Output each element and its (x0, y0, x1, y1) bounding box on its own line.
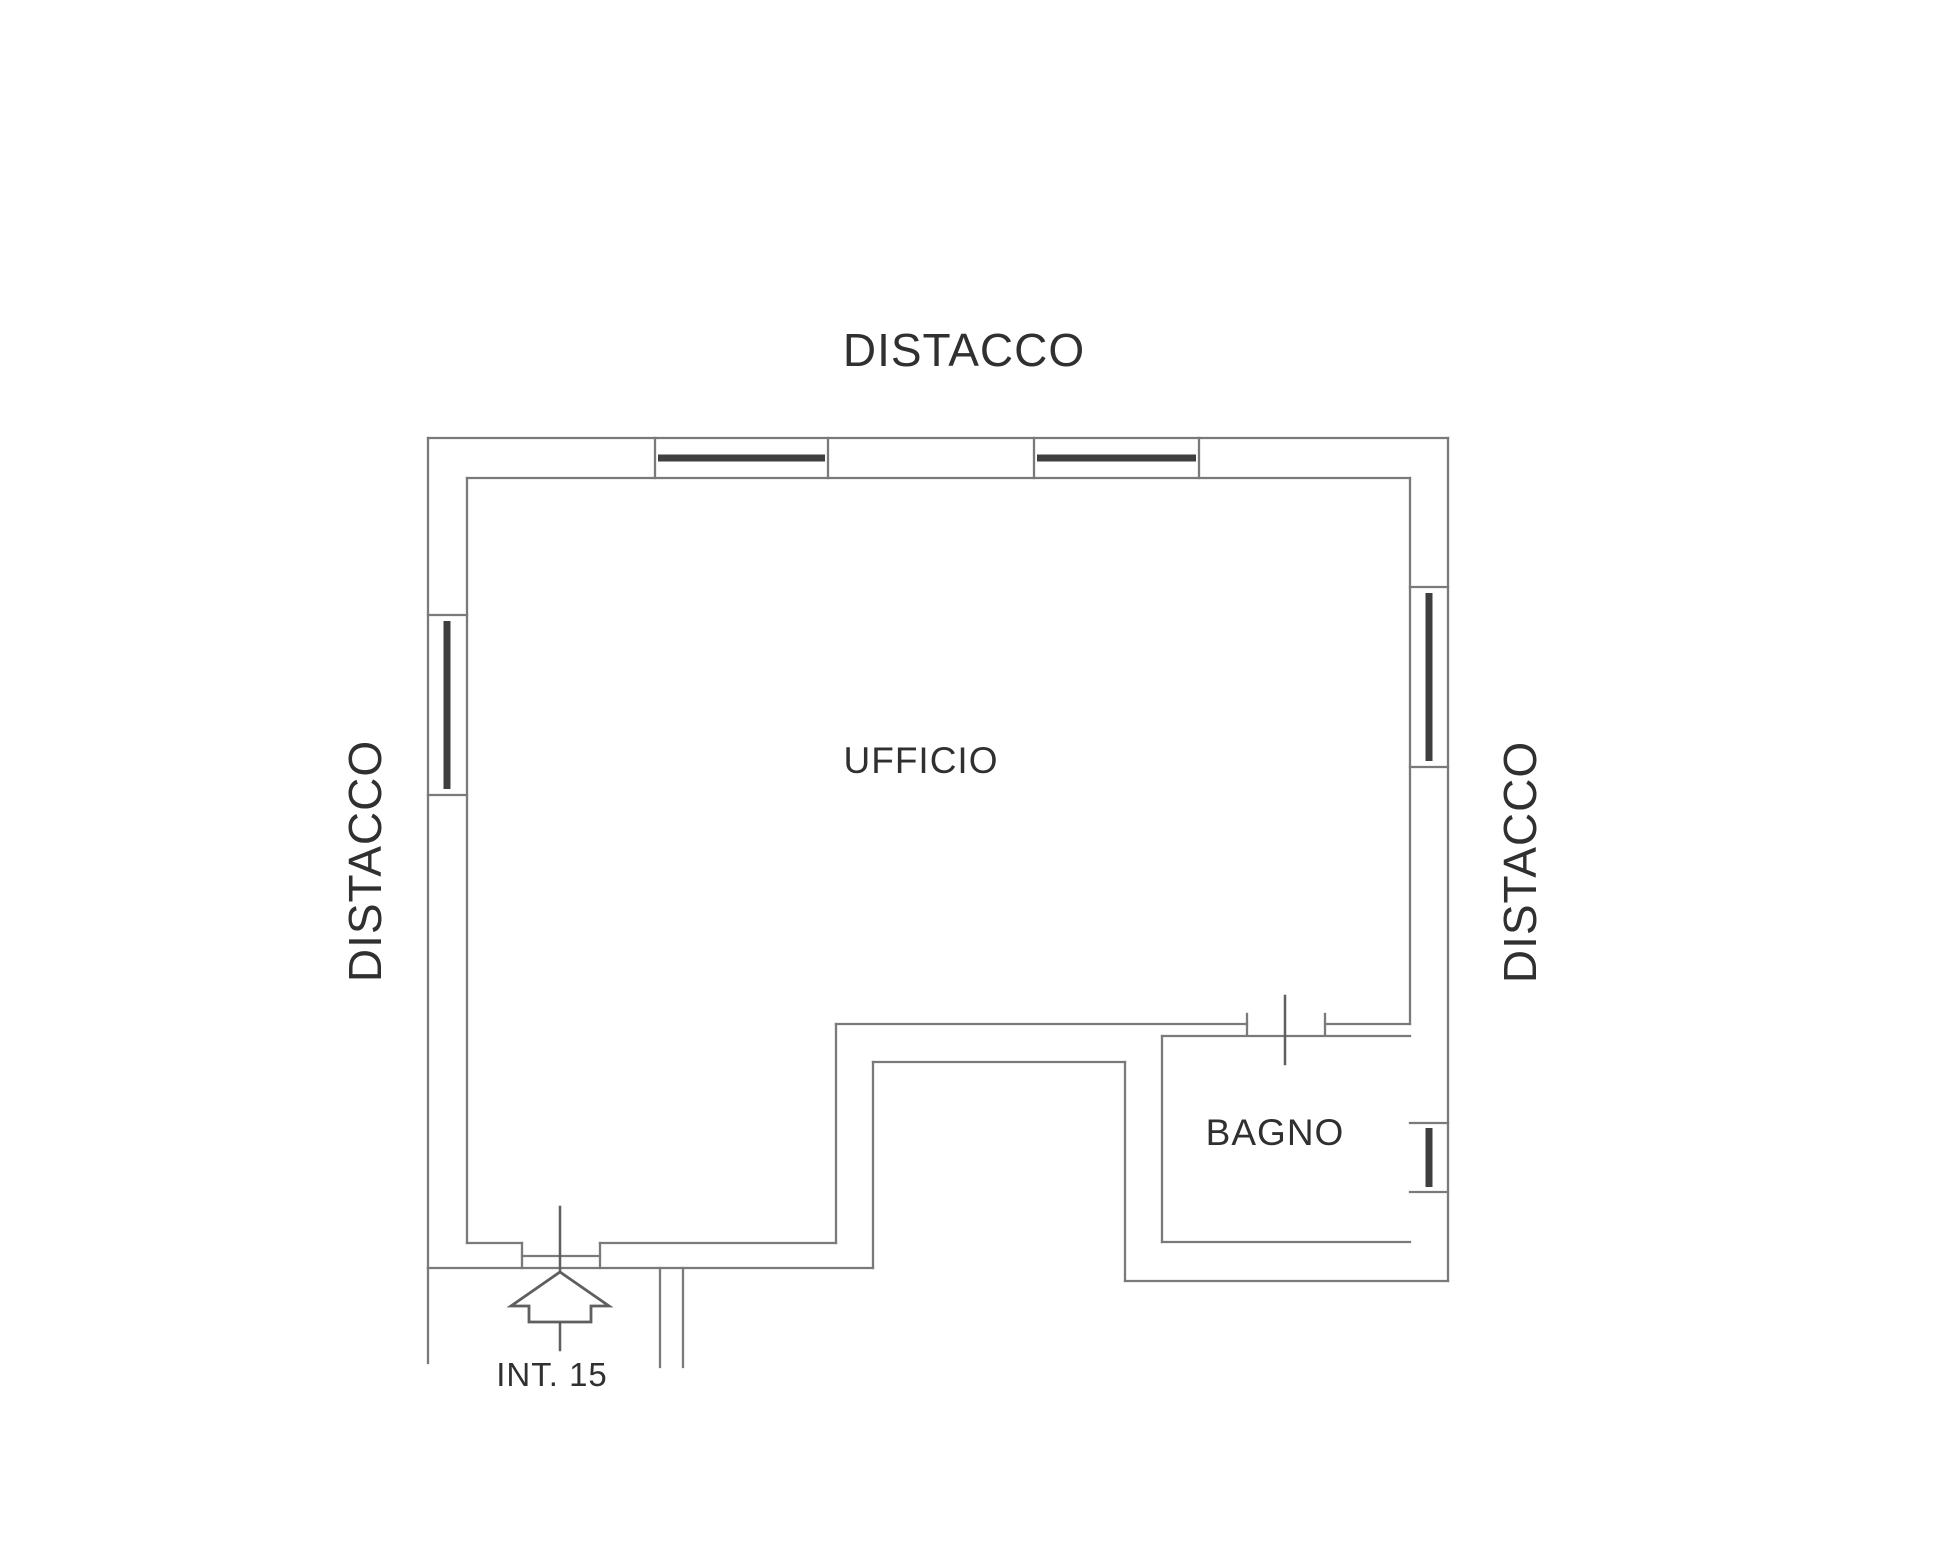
room-label-ufficio: UFFICIO (844, 740, 999, 782)
window-top-right (1034, 438, 1199, 478)
unit-label-int-15: INT. 15 (496, 1356, 608, 1394)
entrance-door-symbol (511, 1207, 609, 1350)
distacco-label-left: DISTACCO (338, 740, 392, 982)
distacco-label-right: DISTACCO (1493, 741, 1547, 983)
entrance-arrow-icon (511, 1272, 609, 1322)
party-wall-stub (660, 1268, 683, 1367)
window-top-left (655, 438, 828, 478)
exterior-walls (428, 438, 1448, 1363)
bagno-door-symbol (1247, 996, 1325, 1064)
room-label-bagno: BAGNO (1206, 1112, 1345, 1154)
floor-plan-canvas: DISTACCO DISTACCO DISTACCO UFFICIO BAGNO… (0, 0, 1956, 1560)
window-left-wall (428, 615, 467, 795)
distacco-label-top: DISTACCO (843, 323, 1085, 377)
window-bagno (1410, 1123, 1448, 1192)
window-right-wall-upper (1410, 587, 1448, 767)
